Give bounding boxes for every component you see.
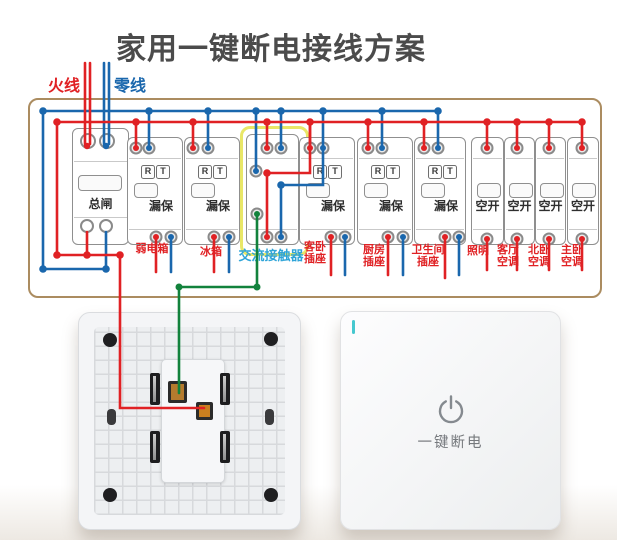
module-seam — [301, 158, 353, 159]
mcb-breaker-4: 空开 — [567, 137, 599, 245]
circuit-label-weak-current-box: 弱电箱 — [122, 244, 182, 256]
breaker-lever — [306, 183, 330, 198]
indicator-mark — [352, 320, 355, 334]
test-button: T — [213, 165, 227, 179]
mounting-clip — [150, 373, 160, 405]
breaker-lever — [364, 183, 388, 198]
module-label: 漏保 — [300, 197, 354, 214]
rcbo-breaker-5: R T 漏保 — [414, 137, 466, 245]
control-wire-terminal — [168, 381, 187, 403]
module-label: 空开 — [568, 197, 598, 214]
breaker-lever — [540, 183, 564, 198]
onekey-switch-panel: 一键断电 — [340, 311, 561, 530]
module-seam — [473, 229, 502, 230]
wiring-diagram: 家用一键断电接线方案 火线 零线 总闸 R T 漏保 R T 漏保 R T 漏保 — [0, 0, 617, 540]
mcb-breaker-2: 空开 — [504, 137, 535, 245]
neutral-wire-label: 零线 — [114, 72, 146, 96]
module-seam — [248, 158, 297, 159]
switch-mechanism — [161, 359, 225, 483]
module-seam — [248, 229, 297, 230]
screw-hole — [264, 332, 278, 346]
breaker-lever — [509, 183, 533, 198]
ac-contactor — [246, 134, 299, 245]
rcbo-breaker-2: R T 漏保 — [184, 137, 240, 245]
module-seam — [186, 158, 238, 159]
test-button: T — [443, 165, 457, 179]
side-slot — [107, 409, 116, 425]
module-label: 空开 — [505, 197, 534, 214]
breaker-lever — [78, 175, 122, 191]
module-seam — [569, 229, 597, 230]
side-slot — [265, 409, 274, 425]
reset-button: R — [428, 165, 442, 179]
power-icon — [429, 389, 473, 433]
module-seam — [74, 217, 127, 218]
module-seam — [186, 229, 238, 230]
circuit-label-kitchen-socket: 厨房插座 — [344, 245, 404, 268]
circuit-label-guest-bedroom-socket: 客卧插座 — [285, 242, 345, 265]
module-label: 漏保 — [185, 197, 239, 214]
screw-hole — [264, 488, 278, 502]
reset-button: R — [198, 165, 212, 179]
test-button: T — [386, 165, 400, 179]
module-seam — [506, 229, 533, 230]
module-seam — [416, 229, 464, 230]
test-button: T — [328, 165, 342, 179]
module-seam — [569, 158, 597, 159]
mounting-clip — [220, 373, 230, 405]
switch-back-plate — [78, 312, 301, 530]
module-seam — [416, 158, 464, 159]
screw-hole — [103, 488, 117, 502]
reset-button: R — [141, 165, 155, 179]
breaker-lever — [421, 183, 445, 198]
live-wire-label: 火线 — [48, 72, 80, 96]
module-seam — [359, 158, 411, 159]
module-seam — [74, 161, 127, 162]
test-button: T — [156, 165, 170, 179]
module-label: 空开 — [472, 197, 503, 214]
onekey-switch-label: 一键断电 — [341, 431, 560, 452]
module-seam — [359, 229, 411, 230]
mounting-clip — [150, 431, 160, 463]
reset-button: R — [371, 165, 385, 179]
breaker-lever — [134, 183, 158, 198]
module-label: 漏保 — [358, 197, 412, 214]
module-seam — [506, 158, 533, 159]
screw-hole — [103, 333, 117, 347]
live-wire-terminal — [196, 402, 213, 420]
module-label: 总闸 — [73, 195, 128, 212]
breaker-lever — [477, 183, 501, 198]
breaker-lever — [572, 183, 596, 198]
mcb-breaker-1: 空开 — [471, 137, 504, 245]
module-seam — [537, 229, 564, 230]
rcbo-breaker-1: R T 漏保 — [127, 137, 183, 245]
module-label: 空开 — [536, 197, 565, 214]
mounting-clip — [220, 431, 230, 463]
reset-button: R — [313, 165, 327, 179]
rcbo-breaker-3: R T 漏保 — [299, 137, 355, 245]
mcb-breaker-3: 空开 — [535, 137, 566, 245]
module-seam — [301, 229, 353, 230]
module-seam — [129, 229, 181, 230]
circuit-label-master-bedroom-ac: 主卧空调 — [542, 245, 602, 268]
breaker-lever — [191, 183, 215, 198]
rcbo-breaker-4: R T 漏保 — [357, 137, 413, 245]
module-seam — [473, 158, 502, 159]
module-label: 漏保 — [415, 197, 465, 214]
main-breaker: 总闸 — [72, 128, 129, 245]
module-label: 漏保 — [128, 197, 182, 214]
page-title: 家用一键断电接线方案 — [116, 24, 426, 68]
module-seam — [129, 158, 181, 159]
module-seam — [537, 158, 564, 159]
